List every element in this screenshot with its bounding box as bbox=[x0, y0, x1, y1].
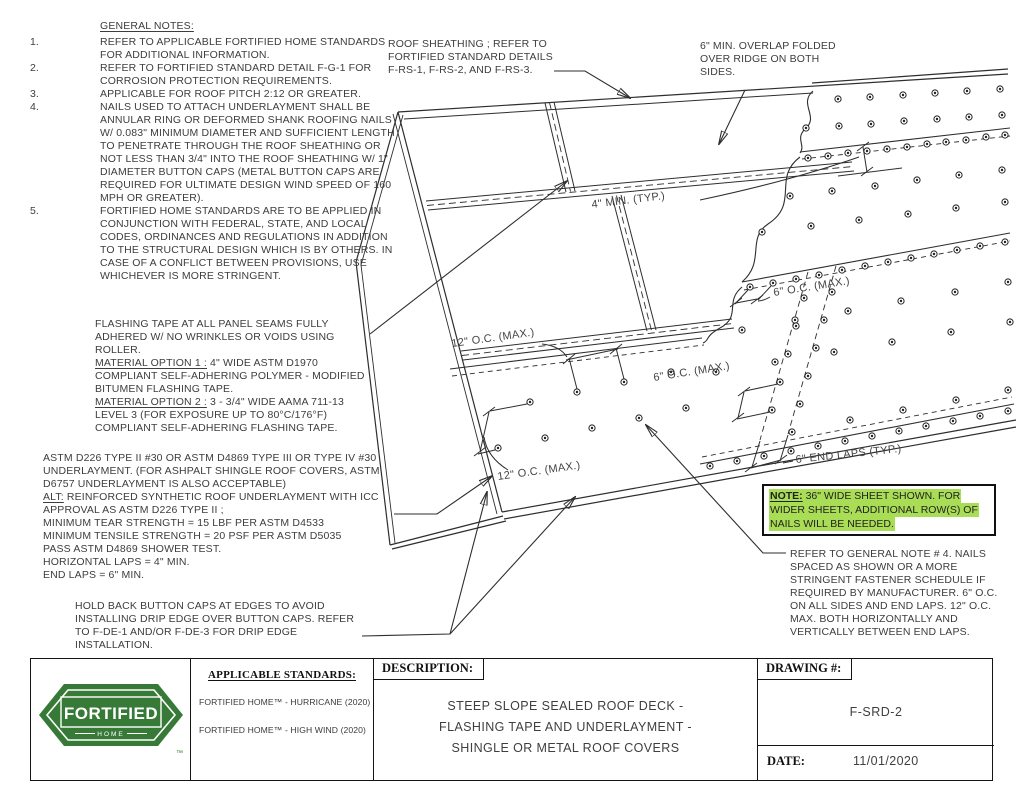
applicable-standards-title: APPLICABLE STANDARDS: bbox=[191, 669, 373, 681]
callout-6-oc-upper: 6" O.C. (MAX.) bbox=[773, 275, 851, 299]
material-option-1-label: MATERIAL OPTION 1 : bbox=[95, 357, 207, 369]
underlayment-note: ASTM D226 TYPE II #30 OR ASTM D4869 TYPE… bbox=[43, 452, 401, 582]
drawing-sheet: 4" MIN. (TYP.) 6" O.C. (MAX.) 12" O.C. (… bbox=[0, 0, 1024, 791]
fold-break-line bbox=[800, 91, 813, 153]
roof-structure bbox=[356, 69, 1016, 549]
callout-12-oc-upper: 12" O.C. (MAX.) bbox=[451, 326, 535, 350]
alt-label: ALT: bbox=[43, 491, 64, 503]
description-text: STEEP SLOPE SEALED ROOF DECK - FLASHING … bbox=[374, 696, 757, 759]
end-lap-edge bbox=[788, 266, 836, 434]
drawing-number-value: F-SRD-2 bbox=[758, 705, 994, 719]
flashing-tape-strips bbox=[426, 102, 854, 360]
sheet-break-line-2 bbox=[703, 287, 742, 343]
general-note-1: 1. REFER TO APPLICABLE FORTIFIED HOME ST… bbox=[30, 36, 410, 62]
logo-sub-word: HOME bbox=[97, 731, 125, 738]
drawing-number-cell: DRAWING #: F-SRD-2 DATE: 11/01/2020 bbox=[758, 659, 994, 780]
leader-overlap bbox=[719, 90, 745, 144]
ridge-line bbox=[398, 74, 1008, 112]
date-label: DATE: bbox=[767, 754, 805, 769]
nail-rows-field-upper bbox=[759, 167, 1008, 235]
leader-underlayment bbox=[394, 476, 492, 514]
callout-6-oc-lower: 6" O.C. (MAX.) bbox=[653, 360, 731, 384]
underlayment-laps bbox=[450, 91, 1014, 464]
general-notes-list: 1. REFER TO APPLICABLE FORTIFIED HOME ST… bbox=[30, 36, 410, 283]
callout-12-oc-lower: 12" O.C. (MAX.) bbox=[497, 459, 581, 483]
general-note-4: 4. NAILS USED TO ATTACH UNDERLAYMENT SHA… bbox=[30, 101, 410, 205]
date-value: 11/01/2020 bbox=[853, 754, 919, 768]
nail-row-lap1 bbox=[805, 132, 1008, 161]
overlap-note: 6" MIN. OVERLAP FOLDED OVER RIDGE ON BOT… bbox=[700, 40, 856, 79]
fastener-note: REFER TO GENERAL NOTE # 4. NAILS SPACED … bbox=[790, 548, 1004, 639]
leader-sheathing bbox=[554, 71, 630, 98]
nail-rows-end-lap bbox=[769, 289, 835, 435]
logo-word: FORTIFIED bbox=[64, 704, 158, 723]
rake-edge bbox=[398, 112, 502, 512]
drawing-number-label: DRAWING #: bbox=[757, 658, 852, 680]
nail-rows-field-left bbox=[495, 369, 689, 451]
flashing-tape-note: FLASHING TAPE AT ALL PANEL SEAMS FULLY A… bbox=[95, 318, 371, 435]
holdback-note: HOLD BACK BUTTON CAPS AT EDGES TO AVOID … bbox=[75, 600, 367, 652]
standards-cell: APPLICABLE STANDARDS: FORTIFIED HOME™ - … bbox=[191, 659, 374, 780]
logo-trademark: ™ bbox=[176, 750, 183, 757]
general-note-2: 2. REFER TO FORTIFIED STANDARD DETAIL F-… bbox=[30, 62, 410, 88]
diagram-callouts: 4" MIN. (TYP.) 6" O.C. (MAX.) 12" O.C. (… bbox=[451, 190, 902, 483]
leader-lines bbox=[362, 71, 786, 636]
title-block: FORTIFIED HOME ™ APPLICABLE STANDARDS: F… bbox=[30, 658, 993, 781]
leader-holdback-2 bbox=[450, 497, 575, 634]
description-label: DESCRIPTION: bbox=[373, 658, 484, 680]
callout-4-min: 4" MIN. (TYP.) bbox=[591, 190, 666, 211]
general-notes-title: GENERAL NOTES: bbox=[100, 20, 194, 32]
nail-row-lap2 bbox=[747, 239, 1008, 290]
standard-hurricane: FORTIFIED HOME™ - HURRICANE (2020) bbox=[199, 697, 381, 707]
material-option-2-label: MATERIAL OPTION 2 : bbox=[95, 396, 207, 408]
general-note-3: 3. APPLICABLE FOR ROOF PITCH 2:12 OR GRE… bbox=[30, 88, 410, 101]
nail-row-fold bbox=[803, 86, 1005, 131]
general-note-5: 5. FORTIFIED HOME STANDARDS ARE TO BE AP… bbox=[30, 205, 410, 283]
end-lap-edge bbox=[760, 272, 808, 440]
description-cell: DESCRIPTION: STEEP SLOPE SEALED ROOF DEC… bbox=[374, 659, 758, 780]
logo-cell: FORTIFIED HOME ™ bbox=[31, 659, 191, 780]
sheet-break-line bbox=[742, 157, 800, 282]
note-label: NOTE: bbox=[770, 490, 803, 502]
wide-sheet-note: NOTE: 36" WIDE SHEET SHOWN. FOR WIDER SH… bbox=[762, 484, 996, 536]
standard-high-wind: FORTIFIED HOME™ - HIGH WIND (2020) bbox=[199, 725, 381, 735]
dimension-marks bbox=[474, 142, 873, 472]
nail-row-lap3 bbox=[707, 408, 1011, 469]
sheathing-note: ROOF SHEATHING ; REFER TO FORTIFIED STAN… bbox=[388, 38, 556, 77]
callout-end-laps: 6" END LAPS (TYP.) bbox=[795, 443, 902, 466]
date-row: DATE: 11/01/2020 bbox=[758, 745, 994, 780]
nail-rows-field-mid bbox=[713, 279, 1013, 423]
fortified-home-logo: FORTIFIED HOME ™ bbox=[35, 675, 187, 763]
